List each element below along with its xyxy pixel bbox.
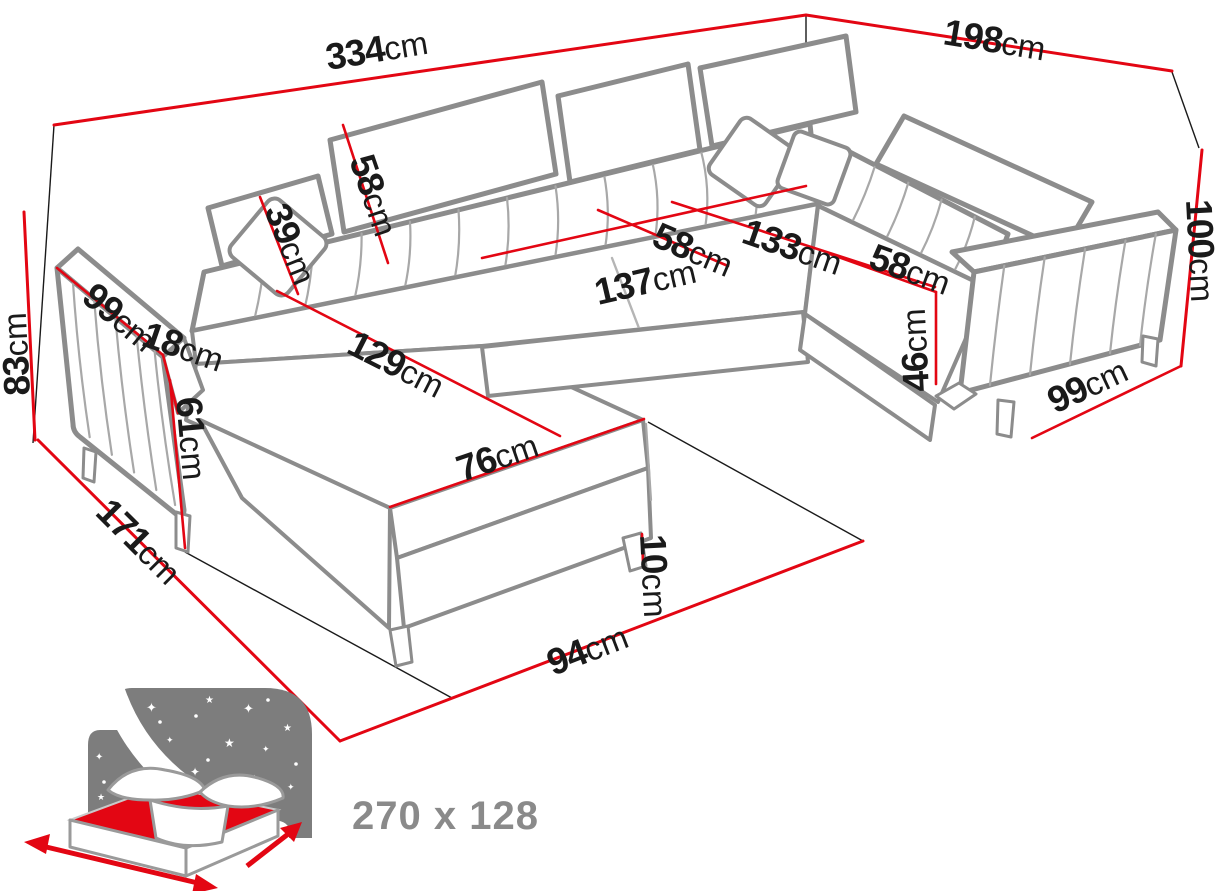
leg-right-arm-back (1142, 336, 1158, 366)
sleeping-area-size: 270 x 128 (352, 794, 539, 838)
svg-text:✦: ✦ (166, 736, 174, 746)
svg-text:✦: ✦ (243, 702, 254, 717)
leg-left-arm-back (83, 448, 96, 482)
svg-text:★: ★ (283, 723, 292, 734)
dim-label-10cm: 10cm (632, 533, 677, 618)
svg-text:★: ★ (97, 793, 105, 803)
dim-label-61cm: 61cm (168, 395, 216, 481)
svg-text:★: ★ (205, 695, 214, 706)
dim-label-100cm: 100cm (1178, 198, 1217, 303)
dim-label-46cm: 46cm (892, 308, 937, 393)
diagram-page: 334cm 198cm 83cm 99cm 18cm 39cm 58cm 129… (0, 0, 1217, 891)
svg-text:✦: ✦ (95, 752, 103, 763)
svg-text:★: ★ (224, 736, 235, 750)
sofa-dimension-diagram: 334cm 198cm 83cm 99cm 18cm 39cm 58cm 129… (0, 0, 1217, 891)
blanket-drape (150, 800, 228, 846)
svg-text:✦: ✦ (262, 745, 270, 755)
dim-label-83cm: 83cm (0, 312, 38, 397)
leg-right-arm-front (997, 400, 1014, 437)
svg-text:✦: ✦ (287, 783, 295, 793)
svg-text:✦: ✦ (146, 701, 157, 716)
